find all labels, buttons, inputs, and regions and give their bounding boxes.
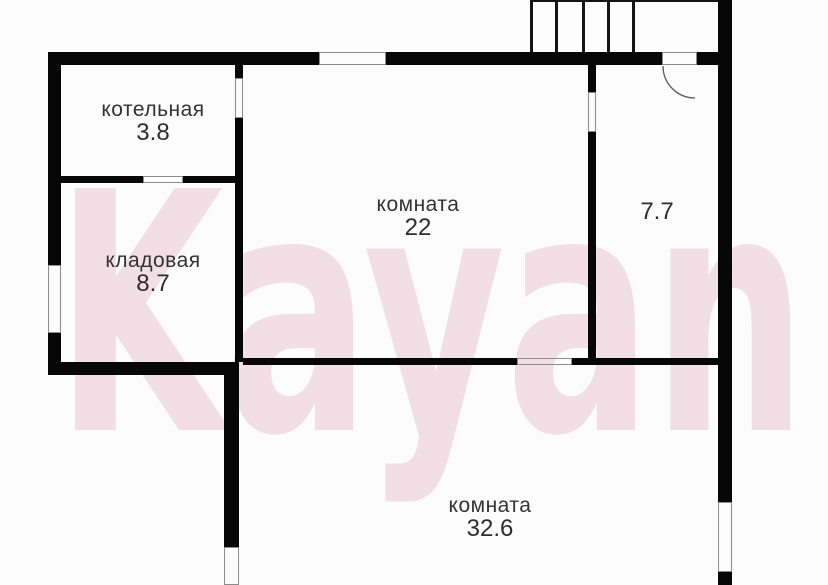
floor-plan: Kayan котельная 3.8 клад (0, 0, 828, 585)
interior-wall-c-segment (588, 65, 596, 92)
interior-wall-c-segment (588, 132, 596, 358)
opening-boiler-room (235, 78, 243, 118)
exterior-wall-right-segment (718, 0, 732, 502)
stair-tread (555, 0, 558, 52)
room-name: котельная (101, 99, 204, 120)
interior-wall-a-segment (235, 65, 243, 78)
door-storage (143, 176, 183, 183)
room-area: 22 (377, 215, 460, 240)
room-name: кладовая (105, 250, 200, 271)
exterior-wall-top-segment (697, 52, 718, 65)
opening-room-326 (517, 358, 572, 365)
exterior-wall-right-segment (718, 572, 732, 585)
stair-tread (582, 0, 585, 52)
room-area: 7.7 (640, 199, 673, 224)
interior-wall-d-segment (243, 358, 517, 365)
opening-hall (588, 92, 596, 132)
room-label-boiler: котельная 3.8 (101, 99, 204, 145)
room-area: 32.6 (449, 516, 532, 541)
stair-tread (632, 0, 635, 52)
room-label-storage: кладовая 8.7 (105, 250, 200, 296)
exterior-wall-left-segment (48, 52, 61, 265)
window-bottom-left (224, 547, 239, 585)
interior-wall-b-segment (183, 176, 235, 183)
room-area: 8.7 (105, 271, 200, 296)
interior-wall-b-segment (61, 176, 143, 183)
door-swing-arc (660, 63, 700, 103)
room-label-room22: комната 22 (377, 194, 460, 240)
room-name: комната (377, 194, 460, 215)
interior-wall-d-segment (572, 358, 718, 365)
interior-wall-a-segment (235, 118, 243, 362)
room-area: 3.8 (101, 120, 204, 145)
room-label-room326: комната 32.6 (449, 495, 532, 541)
room-name: комната (449, 495, 532, 516)
window-top (319, 52, 386, 65)
room-label-hall: 7.7 (640, 199, 673, 224)
staircase-edge-line (530, 0, 718, 2)
exterior-wall-storage-bottom (48, 362, 239, 375)
window-right (718, 502, 732, 572)
stair-tread (607, 0, 610, 52)
exterior-wall-top-segment (48, 52, 319, 65)
exterior-wall-middle-vertical (224, 375, 239, 547)
window-left (48, 265, 61, 333)
stair-tread (530, 0, 533, 52)
exterior-wall-top-segment (386, 52, 662, 65)
